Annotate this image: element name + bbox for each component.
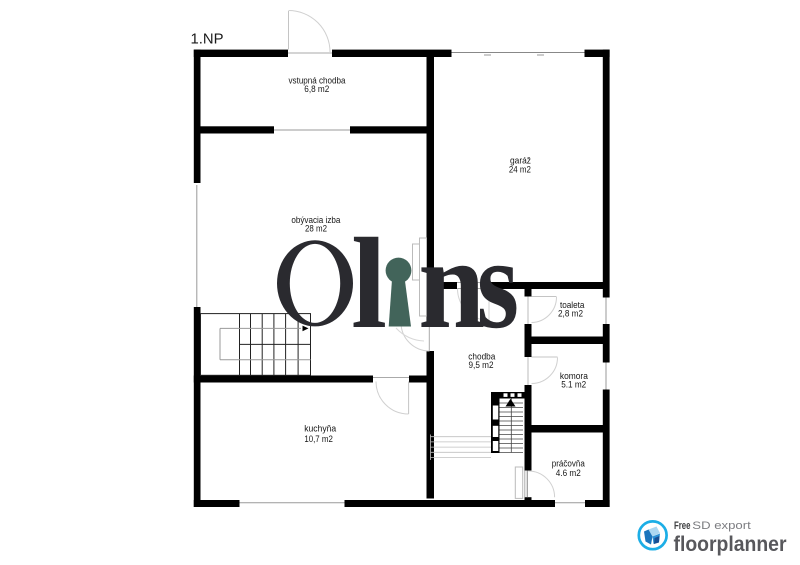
svg-text:SD export: SD export — [692, 520, 751, 532]
svg-text:práčovňa: práčovňa — [552, 458, 585, 468]
svg-text:s: s — [477, 212, 519, 356]
svg-text:9,5 m2: 9,5 m2 — [469, 360, 494, 370]
svg-text:kuchyňa: kuchyňa — [304, 424, 336, 434]
svg-text:24 m2: 24 m2 — [509, 165, 531, 175]
svg-text:5.1 m2: 5.1 m2 — [561, 380, 586, 390]
svg-text:4.6 m2: 4.6 m2 — [556, 468, 581, 478]
svg-text:10,7 m2: 10,7 m2 — [304, 434, 333, 444]
svg-text:28 m2: 28 m2 — [305, 224, 327, 234]
svg-text:l: l — [351, 212, 387, 356]
svg-text:Free: Free — [674, 520, 691, 532]
svg-text:2,8 m2: 2,8 m2 — [558, 308, 583, 318]
svg-text:floorplanner: floorplanner — [674, 533, 787, 556]
svg-text:6,8 m2: 6,8 m2 — [304, 84, 329, 94]
svg-text:1.NP: 1.NP — [191, 32, 224, 48]
svg-text:n: n — [418, 212, 485, 356]
